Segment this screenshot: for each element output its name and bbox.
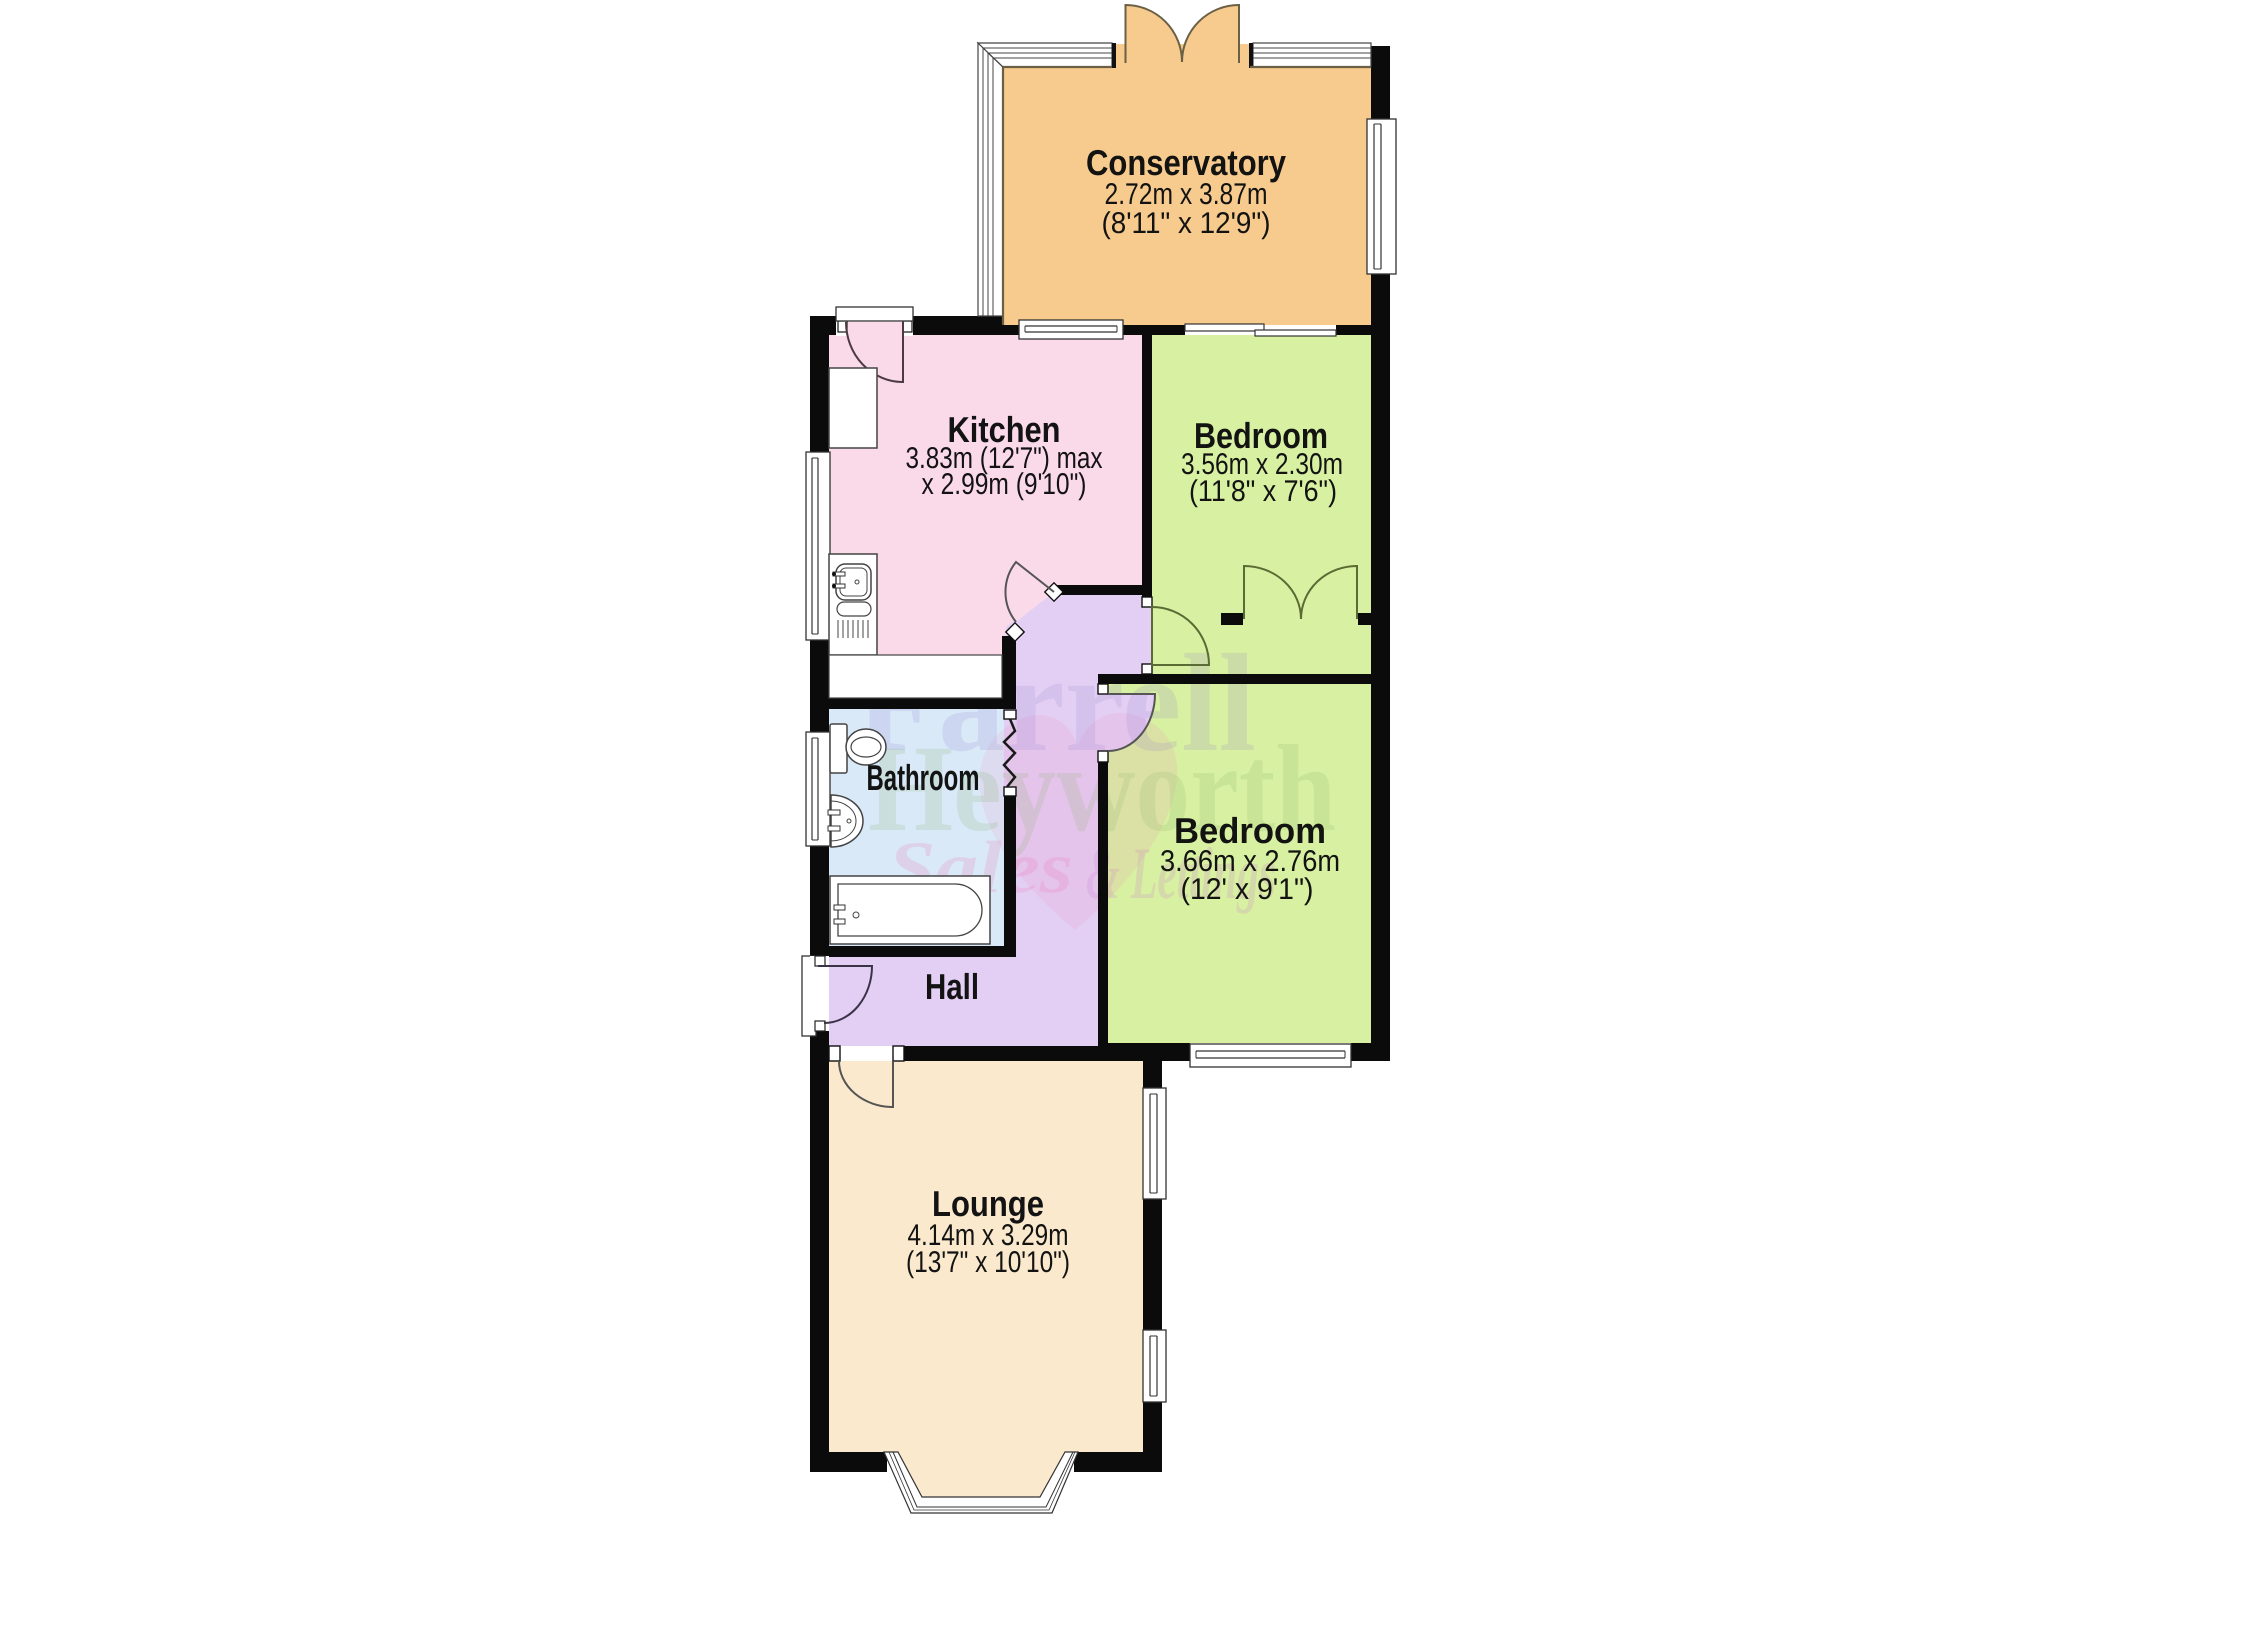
svg-text:Lounge: Lounge [932,1183,1044,1224]
svg-text:(13'7" x 10'10"): (13'7" x 10'10") [906,1246,1070,1279]
svg-text:Conservatory: Conservatory [1086,142,1286,183]
svg-text:(8'11" x 12'9"): (8'11" x 12'9") [1102,207,1271,240]
svg-text:Hall: Hall [925,966,979,1007]
svg-text:(12' x 9'1"): (12' x 9'1") [1181,873,1314,906]
svg-text:x 2.99m (9'10"): x 2.99m (9'10") [922,468,1087,501]
svg-text:(11'8" x 7'6"): (11'8" x 7'6") [1189,475,1337,508]
svg-text:Bathroom: Bathroom [867,757,980,798]
